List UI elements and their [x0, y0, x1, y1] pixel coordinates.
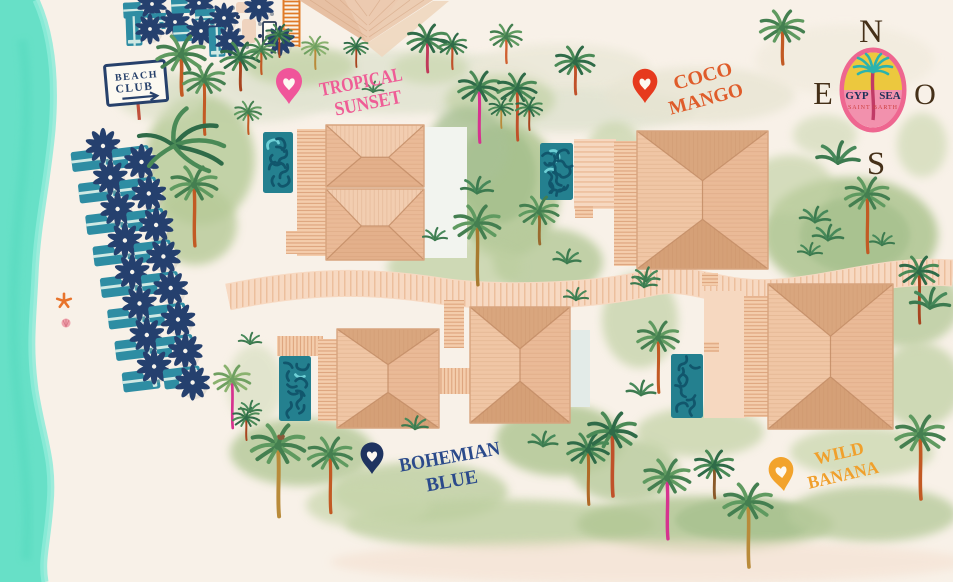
svg-text:S: S [867, 146, 885, 182]
svg-text:SAINT BARTH: SAINT BARTH [848, 105, 898, 111]
svg-text:E: E [813, 75, 833, 111]
svg-text:O: O [914, 78, 936, 111]
svg-text:SEA: SEA [879, 90, 900, 102]
svg-text:N: N [859, 14, 883, 50]
svg-text:GYP: GYP [845, 90, 869, 102]
